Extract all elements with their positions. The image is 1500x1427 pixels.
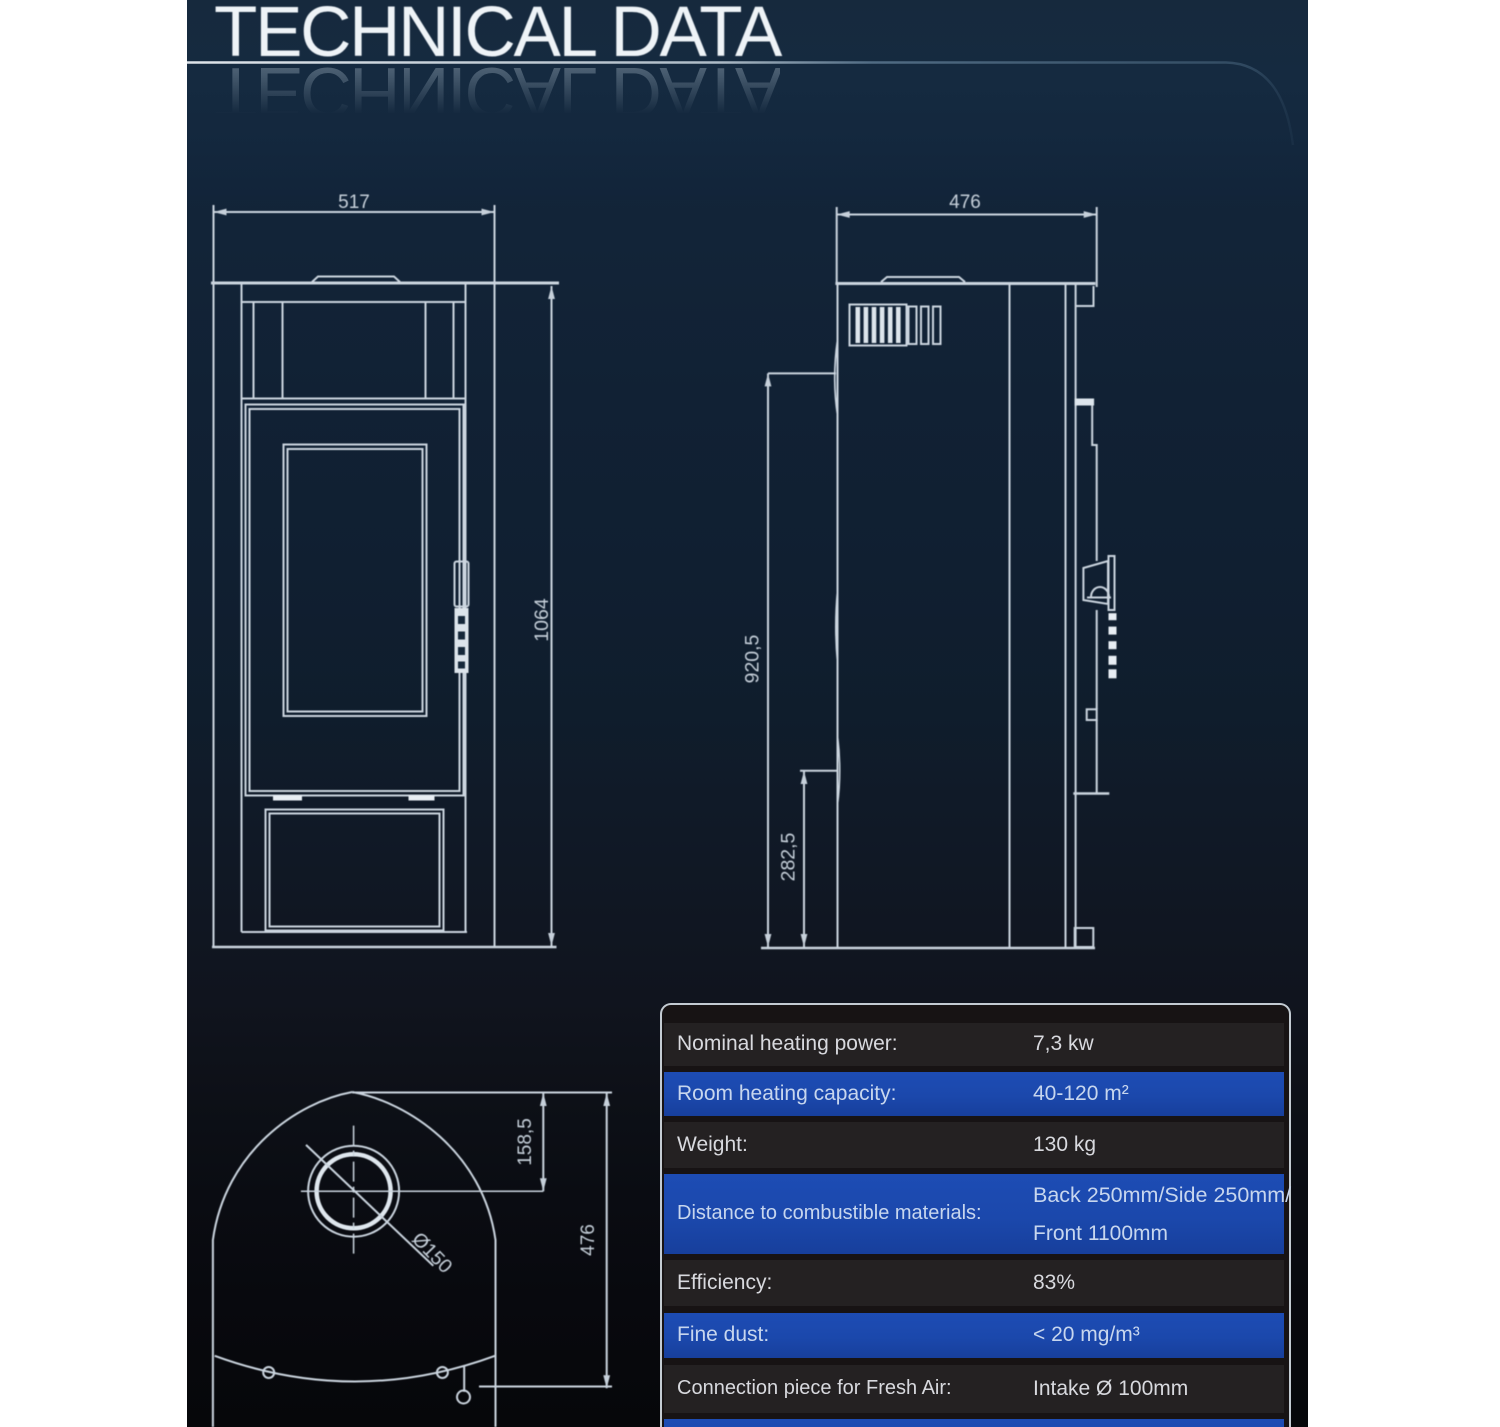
svg-text:1064: 1064 <box>531 598 553 642</box>
svg-text:517: 517 <box>338 192 370 213</box>
svg-text:476: 476 <box>949 192 981 213</box>
svg-text:920,5: 920,5 <box>742 634 764 683</box>
svg-text:158,5: 158,5 <box>515 1118 536 1166</box>
svg-text:476: 476 <box>578 1224 599 1256</box>
svg-text:282,5: 282,5 <box>778 832 800 881</box>
svg-text:Ø150: Ø150 <box>407 1228 456 1278</box>
